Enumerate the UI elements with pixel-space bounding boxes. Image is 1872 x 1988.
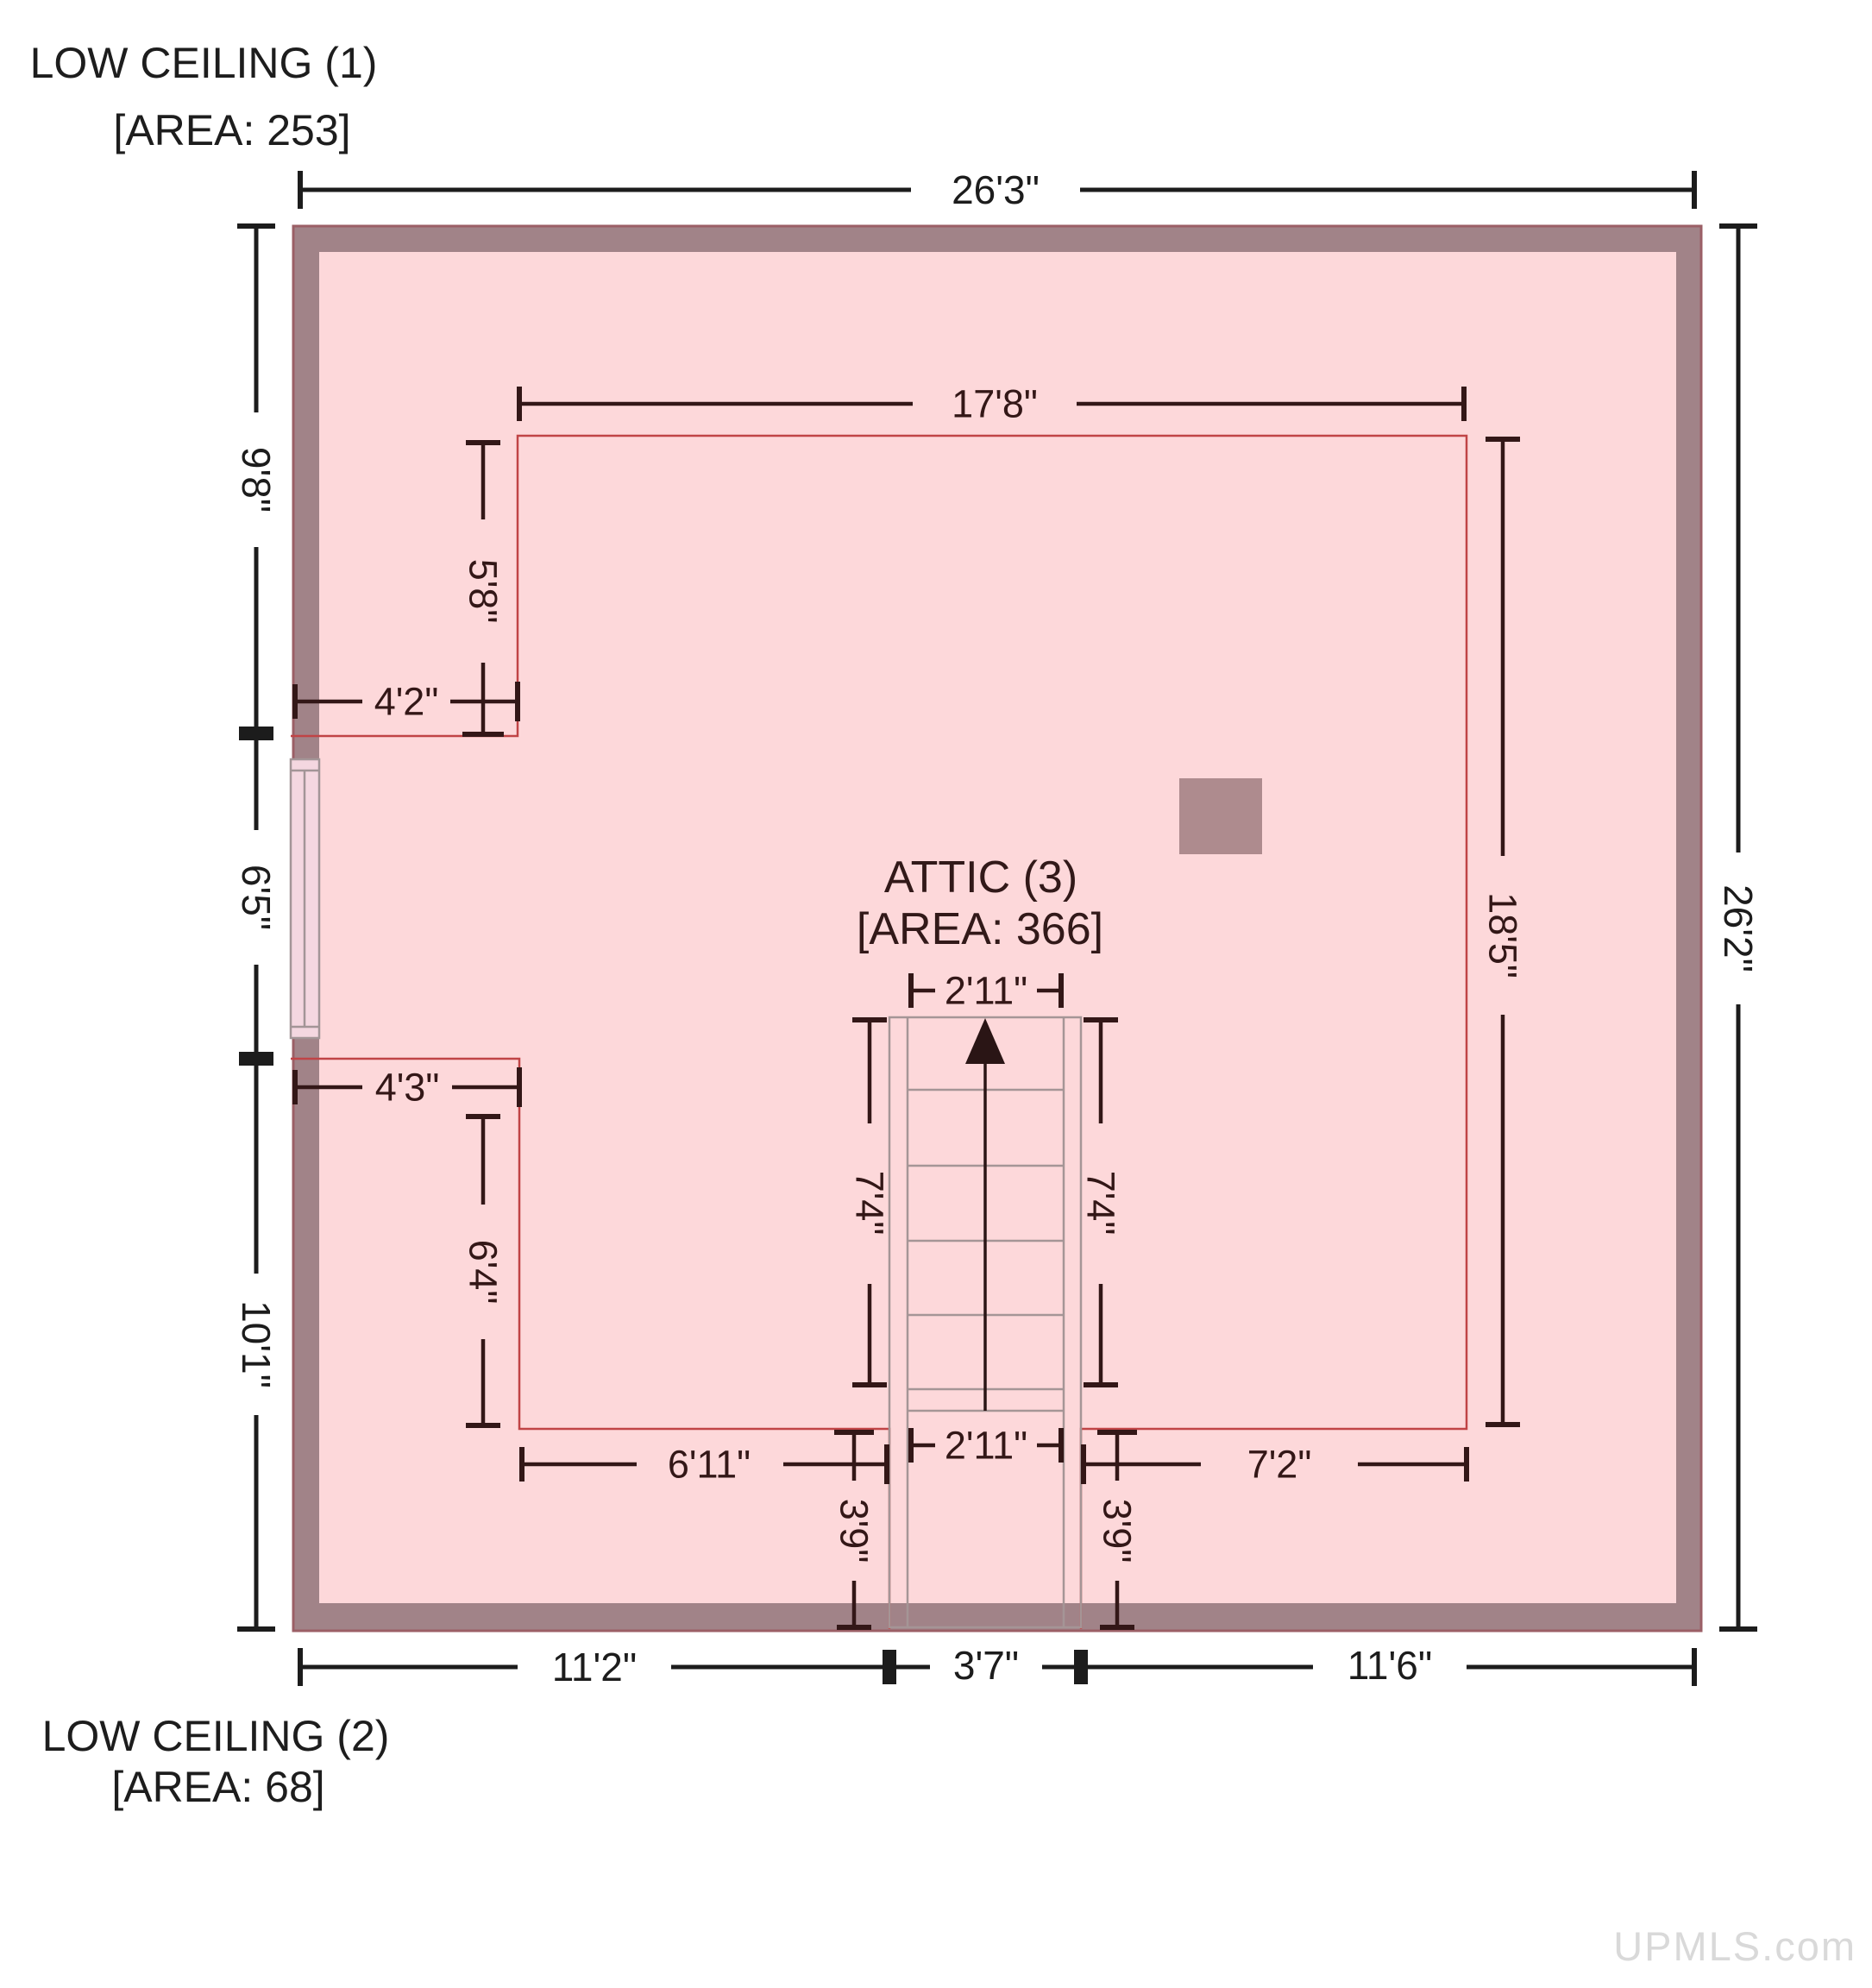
room-area: [AREA: 366] bbox=[857, 904, 1103, 954]
svg-text:2'11": 2'11" bbox=[945, 969, 1027, 1013]
dim-bottom-widths: 11'2" 3'7" 11'6" bbox=[300, 1643, 1694, 1689]
floorplan-canvas: 26'3" 11'2" 3'7" 11'6" 9'8" 6'5" 10'1" 2… bbox=[0, 0, 1872, 1988]
low-ceiling-2-name: LOW CEILING (2) bbox=[42, 1712, 390, 1760]
svg-text:3'7": 3'7" bbox=[953, 1643, 1019, 1688]
svg-text:7'4": 7'4" bbox=[1079, 1171, 1123, 1236]
svg-text:6'11": 6'11" bbox=[668, 1443, 751, 1487]
room-name: ATTIC (3) bbox=[884, 852, 1077, 903]
svg-text:11'2": 11'2" bbox=[552, 1645, 637, 1689]
svg-text:3'9": 3'9" bbox=[832, 1499, 876, 1563]
svg-text:7'2": 7'2" bbox=[1247, 1443, 1312, 1487]
low-ceiling-1-area: [AREA: 253] bbox=[113, 106, 350, 154]
floorplan-page: 26'3" 11'2" 3'7" 11'6" 9'8" 6'5" 10'1" 2… bbox=[0, 0, 1872, 1988]
svg-text:11'6": 11'6" bbox=[1347, 1643, 1432, 1688]
svg-text:26'2": 26'2" bbox=[1716, 884, 1761, 972]
svg-text:4'2": 4'2" bbox=[374, 680, 439, 724]
svg-text:26'3": 26'3" bbox=[952, 167, 1040, 212]
svg-text:17'8": 17'8" bbox=[952, 382, 1038, 426]
chimney bbox=[1179, 778, 1262, 854]
svg-text:7'4": 7'4" bbox=[848, 1171, 892, 1236]
dim-right-height: 26'2" bbox=[1716, 226, 1761, 1629]
low-ceiling-2-area: [AREA: 68] bbox=[111, 1763, 324, 1811]
svg-text:10'1": 10'1" bbox=[234, 1300, 279, 1388]
svg-text:6'5": 6'5" bbox=[234, 865, 279, 930]
svg-text:18'5": 18'5" bbox=[1481, 892, 1525, 978]
svg-text:6'4": 6'4" bbox=[462, 1240, 506, 1305]
dim-top-width: 26'3" bbox=[300, 167, 1694, 212]
low-ceiling-2-label: LOW CEILING (2) [AREA: 68] bbox=[42, 1712, 390, 1811]
svg-text:3'9": 3'9" bbox=[1096, 1499, 1140, 1563]
dim-left-heights: 9'8" 6'5" 10'1" bbox=[234, 226, 279, 1629]
svg-text:5'8": 5'8" bbox=[462, 559, 506, 624]
watermark: UPMLS.com bbox=[1613, 1923, 1856, 1969]
svg-text:9'8": 9'8" bbox=[234, 447, 279, 513]
low-ceiling-1-label: LOW CEILING (1) [AREA: 253] bbox=[30, 39, 378, 154]
svg-text:4'3": 4'3" bbox=[375, 1066, 440, 1110]
left-wall-window bbox=[291, 759, 319, 1038]
svg-text:2'11": 2'11" bbox=[945, 1424, 1027, 1468]
low-ceiling-1-name: LOW CEILING (1) bbox=[30, 39, 378, 87]
